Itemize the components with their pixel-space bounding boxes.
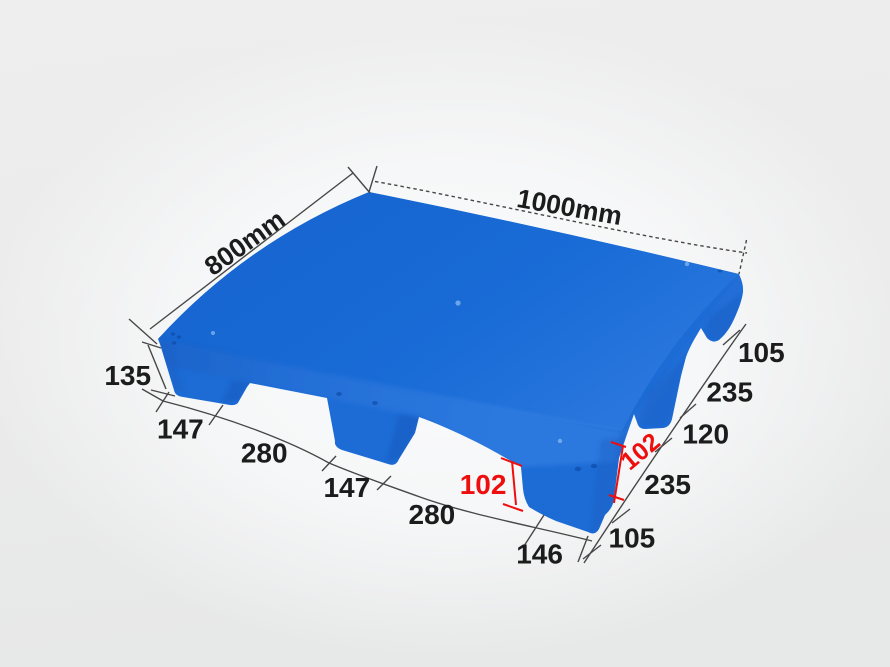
svg-text:235: 235: [706, 377, 753, 408]
svg-text:105: 105: [738, 337, 785, 368]
svg-text:120: 120: [682, 418, 729, 449]
svg-text:135: 135: [104, 360, 151, 391]
svg-text:235: 235: [644, 469, 691, 500]
svg-text:280: 280: [241, 438, 288, 469]
svg-text:146: 146: [516, 538, 563, 569]
svg-text:147: 147: [323, 472, 370, 503]
svg-text:102: 102: [460, 469, 507, 500]
svg-text:280: 280: [409, 499, 456, 530]
svg-text:105: 105: [609, 523, 656, 554]
svg-text:147: 147: [157, 414, 204, 445]
